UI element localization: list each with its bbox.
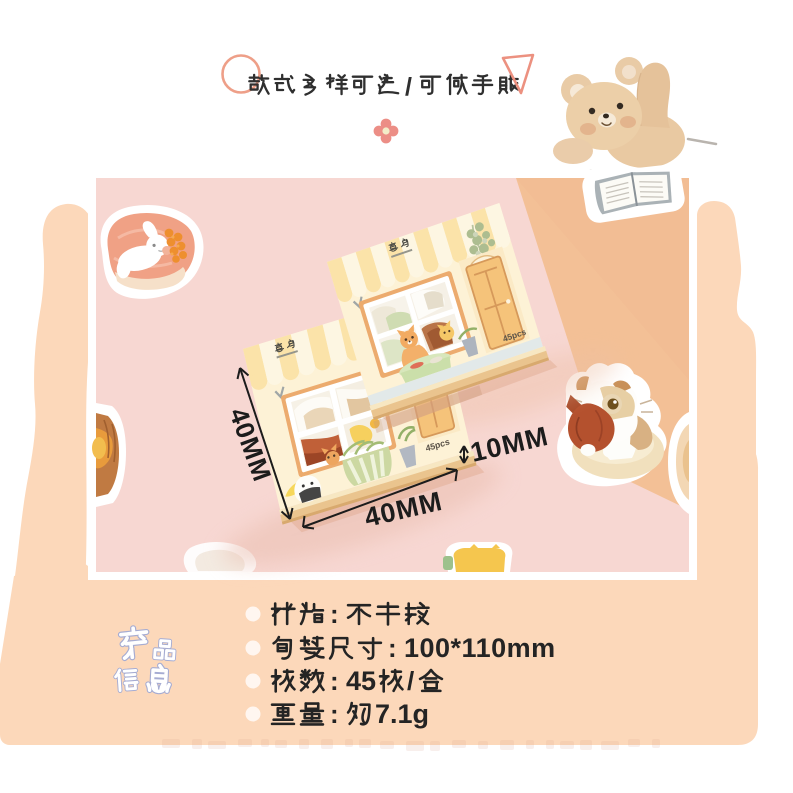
svg-text:/: / [407, 666, 414, 696]
svg-text::: : [388, 633, 397, 663]
svg-text:45: 45 [346, 666, 376, 696]
svg-text:/: / [405, 73, 412, 101]
svg-text::: : [330, 599, 339, 629]
svg-text::: : [330, 699, 339, 729]
svg-text:7.1g: 7.1g [375, 699, 429, 729]
svg-text:100*110mm: 100*110mm [404, 633, 556, 663]
svg-text::: : [330, 666, 339, 696]
